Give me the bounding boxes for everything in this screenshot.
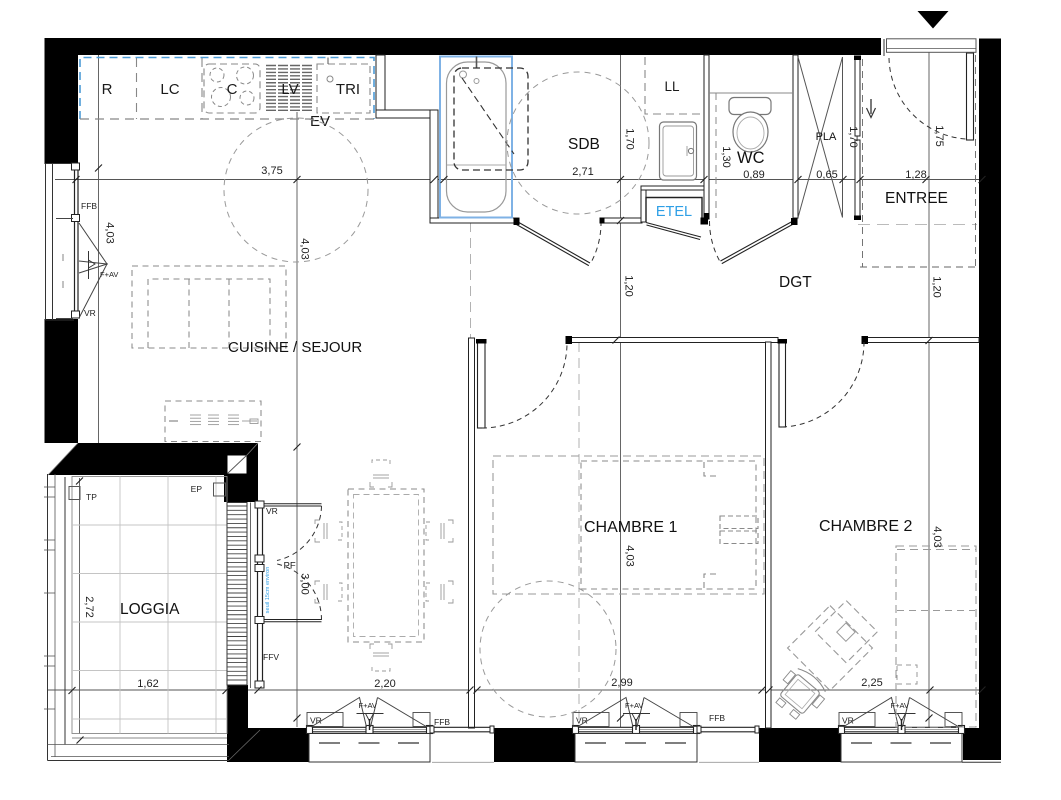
svg-text:seuil 15cm environ: seuil 15cm environ — [265, 567, 271, 614]
svg-text:4,03: 4,03 — [104, 222, 116, 243]
svg-text:LOGGIA: LOGGIA — [120, 601, 180, 618]
svg-text:1,62: 1,62 — [137, 678, 158, 690]
svg-text:C: C — [227, 81, 238, 98]
svg-text:FFB: FFB — [81, 201, 97, 211]
svg-text:F+AV: F+AV — [359, 701, 377, 710]
svg-text:SDB: SDB — [568, 136, 600, 153]
svg-text:CUISINE / SEJOUR: CUISINE / SEJOUR — [228, 339, 362, 356]
svg-text:0,89: 0,89 — [743, 169, 764, 181]
svg-text:3,00: 3,00 — [299, 573, 311, 594]
svg-text:0,65: 0,65 — [816, 169, 837, 181]
svg-text:2,25: 2,25 — [861, 677, 882, 689]
svg-text:DGT: DGT — [779, 274, 812, 291]
svg-text:TRI: TRI — [336, 81, 360, 98]
svg-text:2,71: 2,71 — [572, 166, 593, 178]
svg-text:EP: EP — [191, 484, 203, 494]
svg-text:CHAMBRE 2: CHAMBRE 2 — [819, 518, 912, 535]
svg-text:3,75: 3,75 — [261, 165, 282, 177]
svg-text:FFB: FFB — [434, 717, 450, 727]
svg-text:WC: WC — [737, 149, 765, 167]
svg-text:1,30: 1,30 — [720, 146, 732, 167]
svg-text:PF: PF — [284, 561, 296, 572]
svg-text:VR: VR — [84, 308, 96, 318]
svg-text:LL: LL — [664, 79, 680, 94]
svg-text:1,20: 1,20 — [623, 275, 635, 296]
svg-text:4,03: 4,03 — [931, 526, 943, 547]
svg-text:FFB: FFB — [709, 713, 725, 723]
svg-text:R: R — [102, 81, 113, 98]
svg-text:FFV: FFV — [263, 652, 279, 662]
svg-text:TP: TP — [86, 492, 97, 502]
svg-text:2,72: 2,72 — [83, 596, 95, 617]
svg-text:1,75: 1,75 — [933, 125, 945, 146]
svg-text:PLA: PLA — [816, 131, 837, 143]
svg-text:ETEL: ETEL — [656, 204, 692, 220]
svg-text:2,99: 2,99 — [611, 677, 632, 689]
svg-text:4,03: 4,03 — [624, 545, 636, 566]
svg-text:CHAMBRE 1: CHAMBRE 1 — [584, 519, 677, 536]
svg-text:VR: VR — [266, 506, 278, 516]
svg-text:F+AV: F+AV — [625, 701, 643, 710]
svg-text:2,20: 2,20 — [374, 678, 395, 690]
svg-text:1,70: 1,70 — [624, 128, 636, 149]
svg-text:F+AV: F+AV — [891, 701, 909, 710]
svg-text:EV: EV — [310, 113, 330, 130]
svg-text:LV: LV — [281, 81, 298, 98]
svg-text:F+AV: F+AV — [100, 270, 118, 279]
svg-text:4,03: 4,03 — [299, 238, 311, 259]
svg-text:1,20: 1,20 — [931, 276, 943, 297]
svg-text:1,28: 1,28 — [905, 169, 926, 181]
svg-text:ENTREE: ENTREE — [885, 190, 948, 207]
svg-text:1,70: 1,70 — [847, 126, 859, 147]
svg-text:LC: LC — [160, 81, 179, 98]
